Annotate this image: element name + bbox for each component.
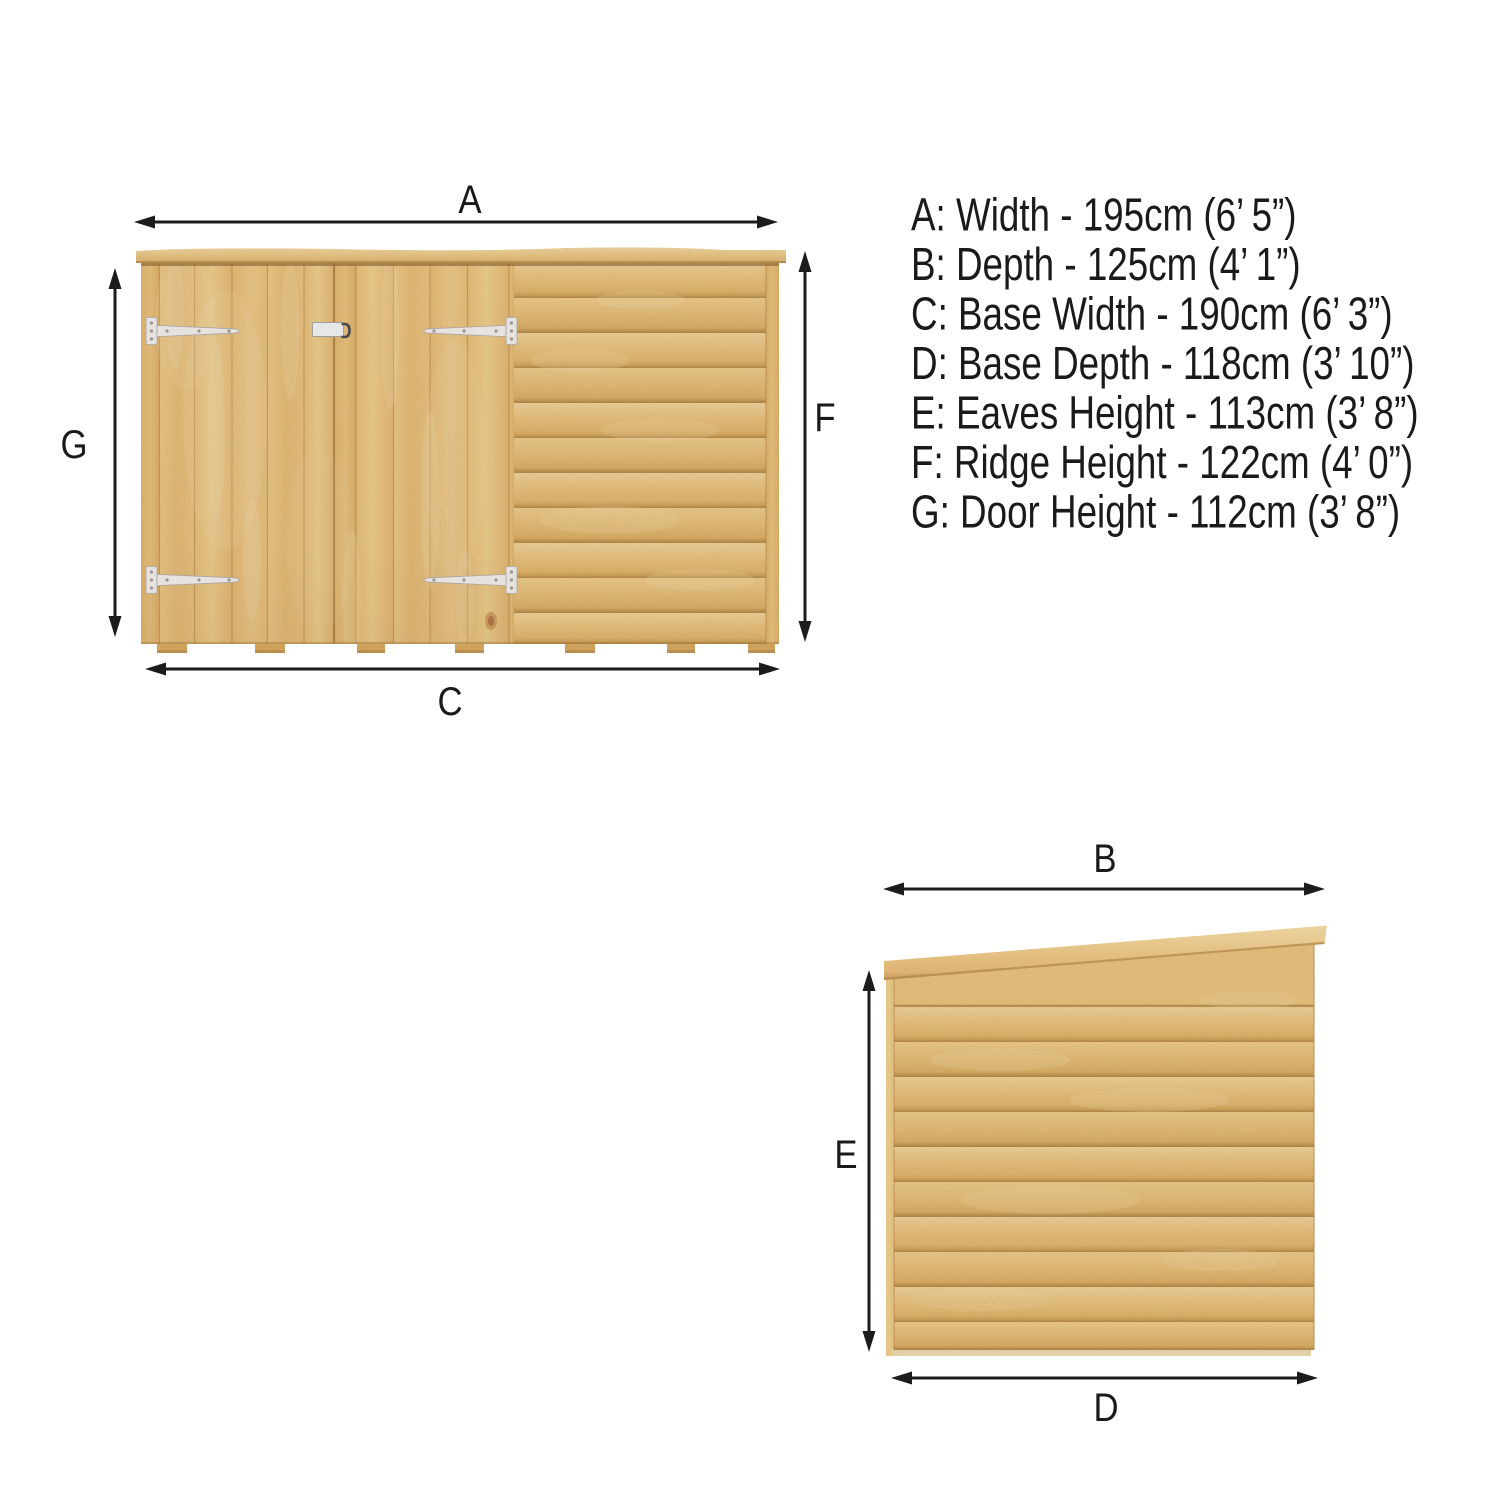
svg-text:C: C: [437, 679, 462, 724]
svg-text:F: Ridge Height - 122cm (4’ 0”: F: Ridge Height - 122cm (4’ 0”): [911, 436, 1413, 488]
svg-text:D: D: [1093, 1385, 1118, 1430]
svg-text:G: Door Height - 112cm (3’ 8”): G: Door Height - 112cm (3’ 8”): [911, 486, 1400, 538]
svg-text:D: Base Depth - 118cm (3’ 10”): D: Base Depth - 118cm (3’ 10”): [911, 337, 1415, 389]
svg-text:A: Width - 195cm (6’ 5”): A: Width - 195cm (6’ 5”): [911, 189, 1297, 241]
svg-text:C: Base Width - 190cm (6’ 3”): C: Base Width - 190cm (6’ 3”): [911, 288, 1393, 340]
svg-text:A: A: [458, 177, 481, 222]
svg-text:B: B: [1093, 836, 1116, 881]
svg-text:E: Eaves Height - 113cm (3’ 8”: E: Eaves Height - 113cm (3’ 8”): [911, 387, 1419, 439]
svg-text:E: E: [834, 1132, 857, 1177]
svg-text:G: G: [60, 422, 87, 467]
svg-text:F: F: [814, 395, 835, 440]
svg-text:B: Depth - 125cm (4’ 1”): B: Depth - 125cm (4’ 1”): [911, 238, 1301, 290]
